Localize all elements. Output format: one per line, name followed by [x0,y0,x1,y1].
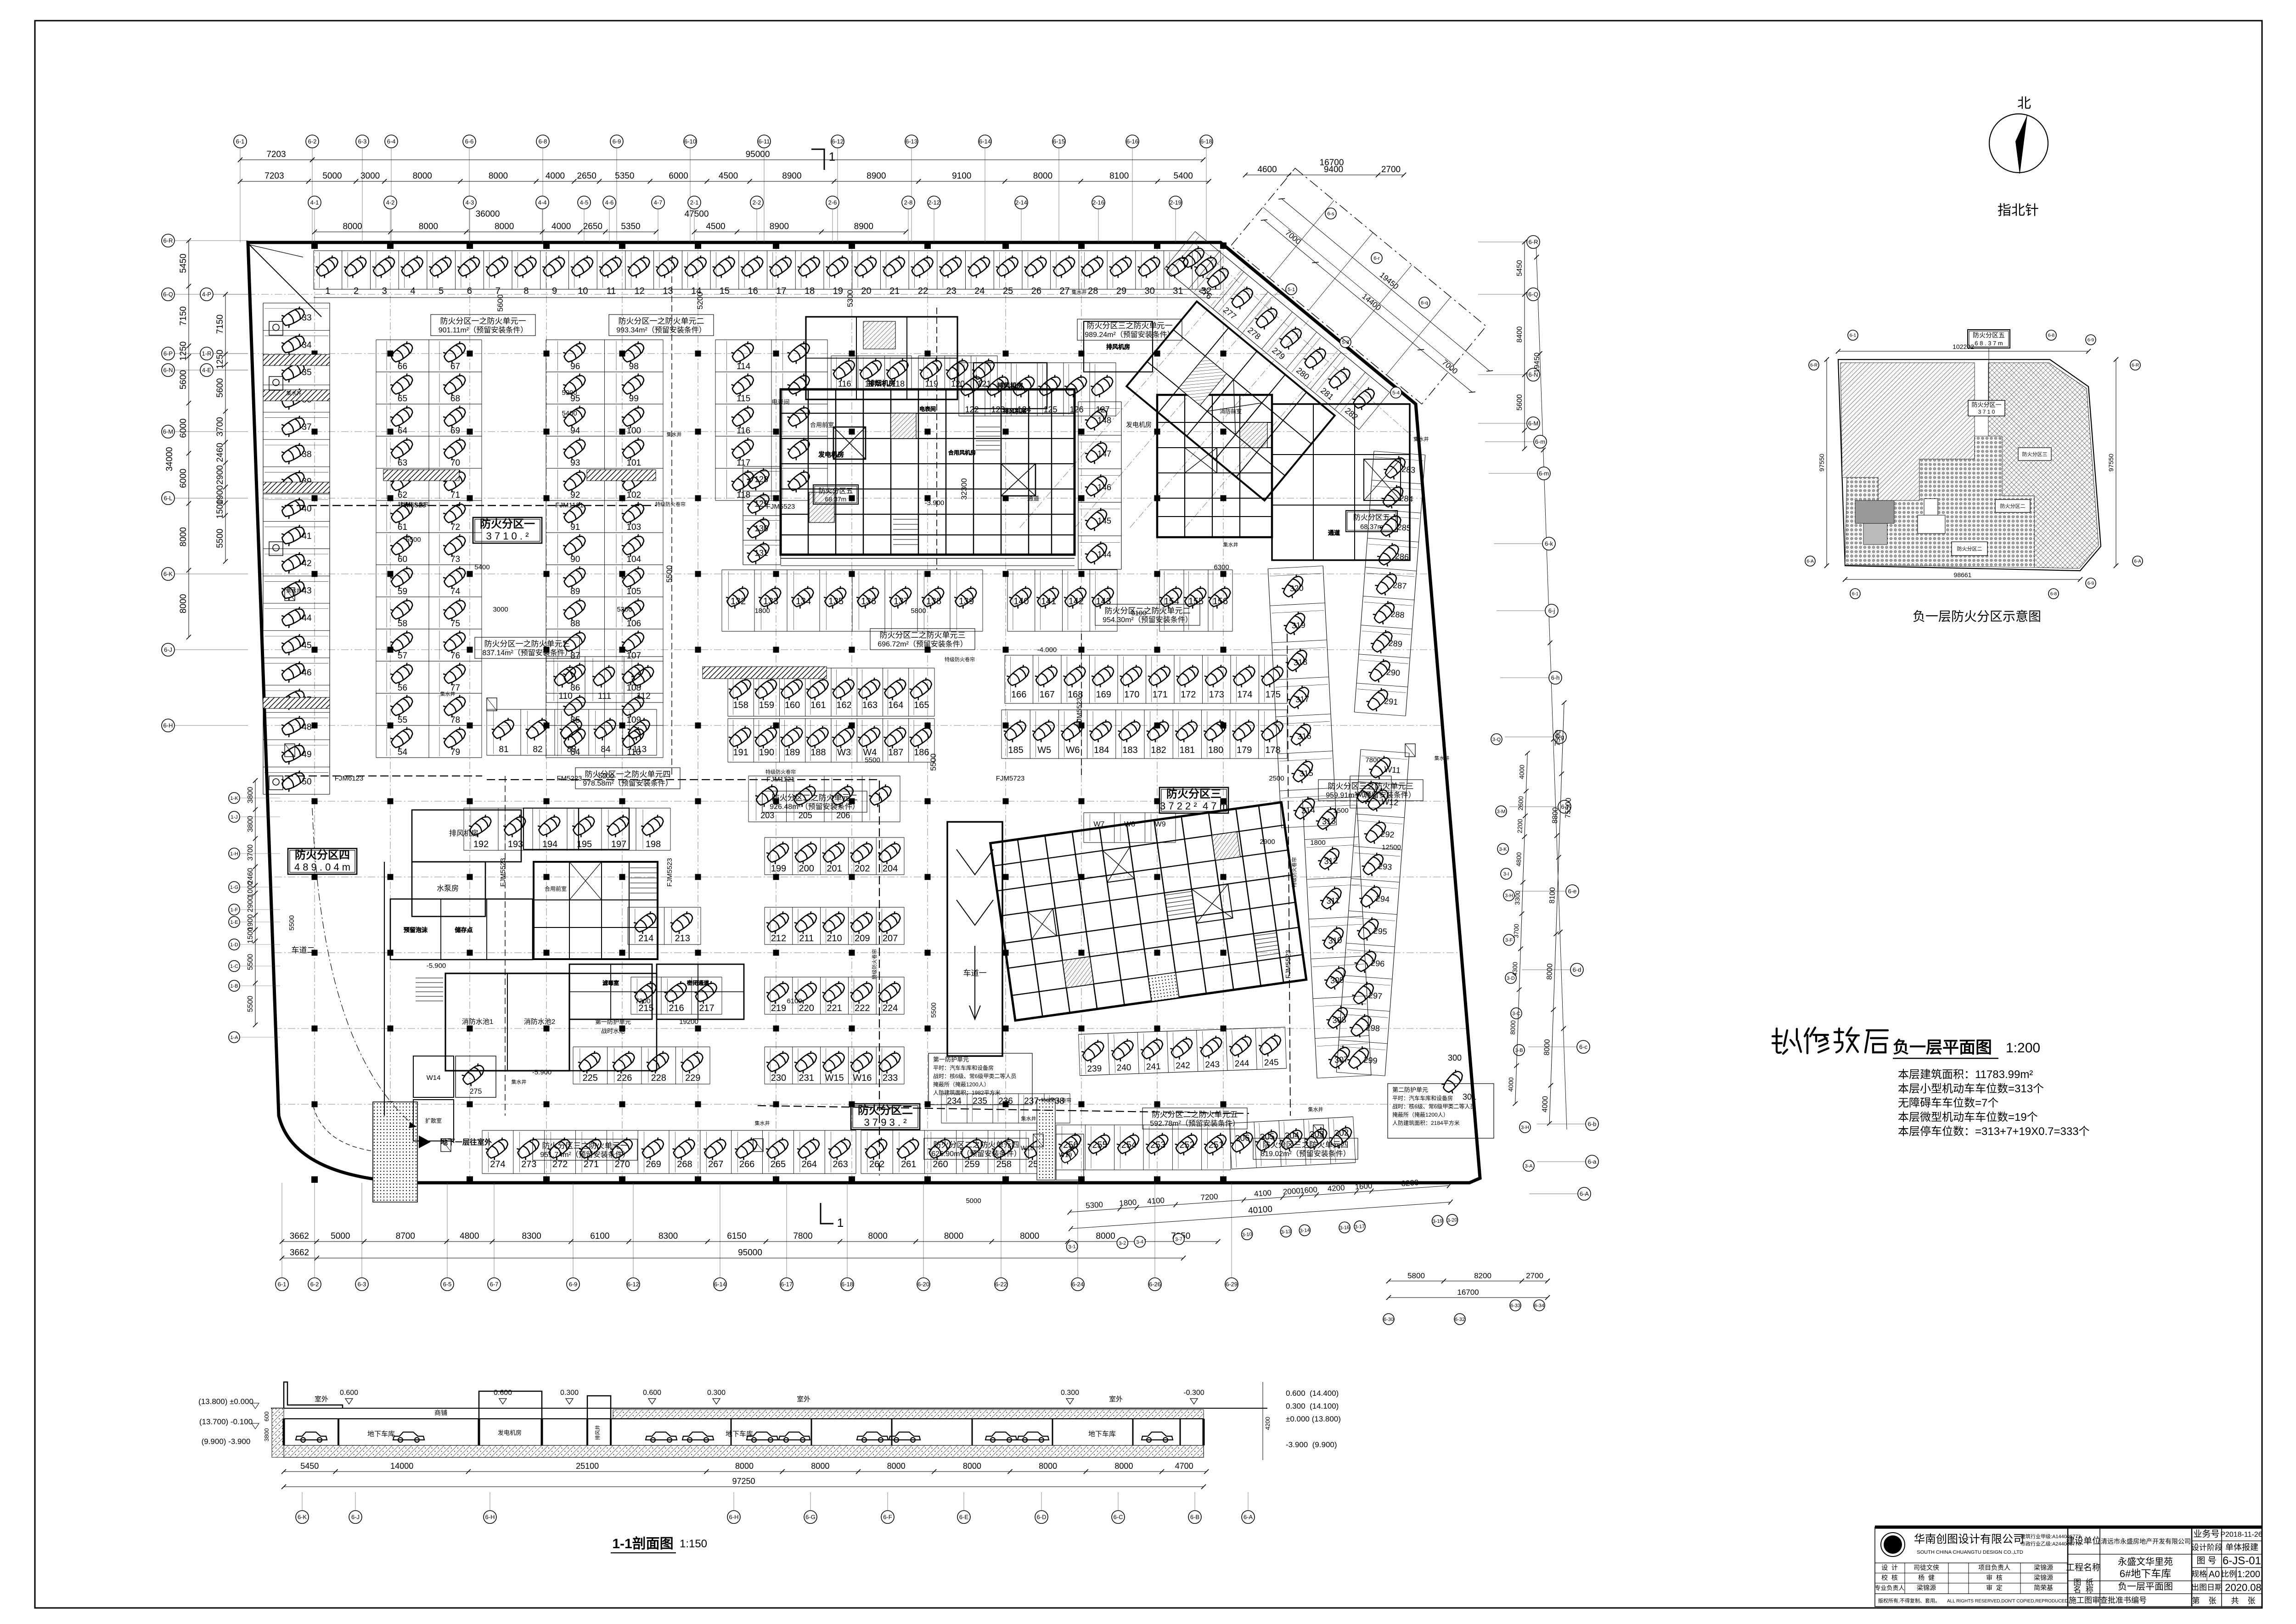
svg-text:47500: 47500 [685,209,709,219]
svg-text:59: 59 [398,587,407,596]
svg-text:901.11m²（预留安装条件）: 901.11m²（预留安装条件） [439,326,528,334]
svg-text:221: 221 [827,1003,842,1013]
svg-text:71: 71 [450,490,460,500]
svg-text:集水井: 集水井 [1308,1106,1323,1113]
svg-text:13: 13 [663,286,673,296]
svg-text:230: 230 [771,1073,786,1083]
svg-text:8700: 8700 [396,1231,415,1241]
svg-text:5400: 5400 [474,563,490,571]
svg-text:扩散室: 扩散室 [425,1117,442,1124]
svg-text:W9: W9 [1155,820,1166,828]
svg-text:6-20: 6-20 [917,1281,929,1288]
svg-text:防火分区二之防火单元二: 防火分区二之防火单元二 [1105,607,1191,615]
svg-text:174: 174 [1237,690,1252,700]
svg-text:梁锦源: 梁锦源 [1917,1584,1936,1591]
svg-text:189: 189 [785,747,800,758]
svg-text:2: 2 [354,286,359,296]
svg-text:8000: 8000 [413,171,432,181]
svg-text:275: 275 [470,1088,482,1096]
svg-text:21: 21 [889,286,900,296]
svg-text:0.300: 0.300 [560,1389,579,1397]
svg-text:6-18: 6-18 [841,1281,853,1288]
svg-text:226: 226 [617,1073,632,1083]
svg-text:永盛文华里苑: 永盛文华里苑 [2118,1557,2173,1567]
svg-text:96: 96 [570,362,580,371]
svg-text:防火分区二之防火单元五: 防火分区二之防火单元五 [1152,1110,1238,1119]
svg-text:8000: 8000 [1509,1020,1517,1035]
svg-text:289: 289 [1388,639,1402,649]
svg-text:4000: 4000 [546,171,565,181]
svg-text:6-K: 6-K [163,571,173,578]
svg-text:231: 231 [799,1073,814,1083]
svg-text:9100: 9100 [952,171,971,181]
svg-text:掩蔽所（掩蔽1200人）: 掩蔽所（掩蔽1200人） [933,1081,990,1088]
svg-text:-3.900: -3.900 [925,499,945,507]
svg-text:(9.900) -3.900: (9.900) -3.900 [202,1437,251,1446]
svg-text:W14: W14 [427,1074,441,1082]
svg-text:0.600: 0.600 [494,1389,512,1397]
svg-text:142: 142 [1069,596,1084,607]
svg-text:6-2: 6-2 [308,138,317,145]
svg-text:防火分区三之防火单元三: 防火分区三之防火单元三 [1328,782,1414,791]
svg-text:1: 1 [325,286,330,296]
svg-text:7800: 7800 [793,1231,812,1241]
svg-text:3000: 3000 [493,606,508,613]
svg-text:清远市永盛房地产开发有限公司: 清远市永盛房地产开发有限公司 [2101,1538,2191,1545]
svg-text:战时水池: 战时水池 [601,1028,625,1034]
svg-text:7203: 7203 [266,150,286,159]
svg-text:145: 145 [1097,517,1111,526]
svg-text:6-7: 6-7 [490,1281,499,1288]
svg-text:240: 240 [1116,1063,1131,1073]
svg-text:防火分区三: 防火分区三 [2022,451,2048,457]
svg-text:6-A: 6-A [2134,559,2141,564]
svg-text:136: 136 [861,596,876,607]
svg-text:4100: 4100 [1254,1188,1272,1198]
svg-text:148: 148 [1097,416,1111,425]
svg-text:83: 83 [567,745,576,754]
svg-text:6-JS-01: 6-JS-01 [2223,1555,2261,1567]
svg-text:6000: 6000 [669,171,688,181]
svg-text:216: 216 [669,1003,684,1013]
svg-text:4000: 4000 [1518,764,1525,779]
svg-text:-0.300: -0.300 [1183,1389,1204,1397]
svg-text:北: 北 [2017,96,2031,111]
svg-text:6-h: 6-h [1551,674,1560,681]
svg-text:1-C: 1-C [230,964,238,969]
svg-text:102: 102 [626,490,641,500]
svg-text:本层停车位数：=313+7+19X0.7=333个: 本层停车位数：=313+7+19X0.7=333个 [1898,1125,2090,1138]
svg-text:8: 8 [523,286,529,296]
svg-text:名 称: 名 称 [2073,1585,2093,1594]
svg-text:0.600: 0.600 [643,1389,661,1397]
svg-text:梁锦源: 梁锦源 [2034,1574,2053,1581]
svg-text:978.58m²（预留安装条件）: 978.58m²（预留安装条件） [583,779,673,787]
svg-text:171: 171 [1153,690,1168,700]
svg-text:36000: 36000 [476,209,500,219]
svg-text:排烟机房: 排烟机房 [868,380,895,388]
svg-text:3: 3 [382,286,387,296]
svg-text:251: 251 [1209,1140,1224,1150]
svg-text:排风井: 排风井 [594,1425,601,1440]
svg-text:5450: 5450 [179,253,188,273]
svg-text:规格: 规格 [2191,1570,2207,1579]
svg-text:6-18: 6-18 [1200,138,1212,145]
svg-text:防火分区五: 防火分区五 [818,487,853,495]
svg-text:A0: A0 [2209,1569,2220,1579]
svg-text:254: 254 [1121,1140,1137,1150]
svg-text:4000: 4000 [1541,1096,1549,1113]
svg-text:92: 92 [570,490,580,500]
svg-text:3700: 3700 [247,844,254,861]
svg-text:项目负责人: 项目负责人 [1978,1564,2010,1571]
svg-text:268: 268 [677,1159,692,1169]
svg-text:6000: 6000 [179,469,188,488]
svg-text:28: 28 [1088,286,1098,296]
svg-text:134: 134 [796,596,811,607]
svg-text:97550: 97550 [1818,454,1825,472]
svg-text:1500: 1500 [247,927,254,944]
svg-text:3-20: 3-20 [1447,1217,1458,1224]
svg-text:292: 292 [1380,829,1395,839]
svg-text:3800: 3800 [263,1428,270,1442]
svg-text:5600: 5600 [215,378,225,398]
svg-text:819.02m²（预留安装条件）: 819.02m²（预留安装条件） [1261,1150,1351,1158]
svg-text:84: 84 [601,745,611,754]
svg-text:合用风机房: 合用风机房 [948,449,976,456]
svg-text:W18: W18 [1021,1144,1034,1152]
svg-text:防火分区二之防火单元三: 防火分区二之防火单元三 [880,631,966,640]
svg-text:169: 169 [1096,690,1111,700]
svg-text:244: 244 [1234,1059,1249,1069]
svg-text:207: 207 [883,933,898,944]
svg-text:平时：汽车车库和设备房: 平时：汽车车库和设备房 [933,1064,994,1071]
svg-text:3-H: 3-H [1521,1125,1529,1130]
svg-text:6-14: 6-14 [714,1281,726,1288]
svg-text:排风机房: 排风机房 [449,829,478,837]
svg-text:109: 109 [626,715,641,725]
svg-text:防火分区二之防火单元二: 防火分区二之防火单元二 [772,793,858,802]
svg-text:6150: 6150 [727,1231,746,1241]
svg-text:2-2: 2-2 [753,199,761,206]
svg-text:6-D: 6-D [1037,1514,1047,1521]
svg-text:6-k: 6-k [1545,540,1553,547]
svg-text:100: 100 [626,426,641,436]
svg-text:6-30: 6-30 [1384,1317,1394,1322]
svg-text:6-1: 6-1 [278,1281,287,1288]
svg-text:6-B: 6-B [1190,1514,1199,1521]
svg-text:592.78m²（预留安装条件）: 592.78m²（预留安装条件） [1150,1119,1240,1128]
svg-text:272: 272 [552,1159,568,1169]
svg-text:242: 242 [1176,1061,1190,1071]
svg-text:1500: 1500 [1333,807,1348,815]
svg-text:集水井: 集水井 [1414,436,1429,442]
svg-text:315: 315 [1299,768,1313,778]
svg-text:65: 65 [398,394,407,404]
svg-text:258: 258 [996,1159,1012,1169]
svg-text:2900: 2900 [215,465,225,484]
svg-text:防火分区三之防火单元一: 防火分区三之防火单元一 [1087,321,1173,330]
svg-text:FJM1121: FJM1121 [555,501,583,509]
svg-text:排风机房: 排风机房 [1106,343,1130,350]
svg-text:6-3: 6-3 [358,1281,366,1288]
svg-text:8000: 8000 [495,222,514,231]
svg-text:7150: 7150 [179,306,188,326]
svg-text:8000: 8000 [179,594,188,613]
svg-text:88: 88 [570,619,580,629]
svg-text:FJM5523: FJM5523 [766,503,795,511]
svg-text:58: 58 [398,619,407,629]
svg-text:94: 94 [570,426,580,436]
svg-text:3 7 9 3 . ²: 3 7 9 3 . ² [864,1117,907,1128]
svg-text:(13.800) ±0.000: (13.800) ±0.000 [198,1397,253,1406]
svg-text:104: 104 [626,555,641,564]
svg-text:306: 306 [1235,1133,1250,1144]
svg-text:3300: 3300 [1514,890,1521,905]
svg-text:8000: 8000 [963,1461,981,1471]
svg-text:114: 114 [737,362,751,371]
svg-text:135: 135 [828,596,844,607]
svg-text:271: 271 [584,1159,599,1169]
svg-text:6-L: 6-L [164,495,173,502]
svg-text:6-r: 6-r [1373,256,1380,261]
svg-text:FJM5523: FJM5523 [499,858,507,887]
svg-text:105: 105 [626,587,641,596]
svg-text:8000: 8000 [1546,963,1554,980]
svg-text:6-26: 6-26 [1149,1281,1161,1288]
svg-text:2-8: 2-8 [904,199,913,206]
svg-text:防火分区一: 防火分区一 [480,517,535,530]
svg-text:FJM5523: FJM5523 [666,858,674,887]
svg-text:5-1: 5-1 [1288,287,1295,292]
svg-text:261: 261 [901,1159,916,1169]
svg-text:8000: 8000 [1039,1461,1057,1471]
svg-text:42: 42 [302,559,311,568]
svg-text:228: 228 [651,1073,666,1083]
svg-text:业务号: 业务号 [2193,1529,2219,1539]
svg-text:本层微型机动车车位数=19个: 本层微型机动车车位数=19个 [1898,1111,2038,1124]
svg-text:5450: 5450 [300,1461,319,1471]
svg-text:274: 274 [490,1159,505,1169]
svg-text:战时：核6级、常6级甲类二等人员: 战时：核6级、常6级甲类二等人员 [933,1073,1016,1079]
svg-text:8900: 8900 [867,171,886,181]
svg-text:8000: 8000 [1543,1039,1551,1056]
svg-text:6-J: 6-J [164,646,172,653]
svg-text:158: 158 [733,700,748,710]
svg-text:5500: 5500 [405,536,421,544]
svg-text:2700: 2700 [1526,1271,1543,1280]
svg-text:163: 163 [862,700,878,710]
svg-text:7200: 7200 [635,997,650,1005]
svg-text:3-M: 3-M [1497,809,1506,815]
svg-text:1: 1 [837,1216,844,1230]
svg-text:45: 45 [302,641,311,650]
svg-text:311: 311 [1326,896,1340,905]
svg-text:8100: 8100 [1109,171,1129,181]
svg-text:300: 300 [1448,1053,1462,1062]
svg-text:29: 29 [1116,286,1126,296]
svg-text:6-R: 6-R [2132,363,2139,368]
svg-text:68.37m: 68.37m [1360,523,1383,531]
svg-text:156: 156 [1213,596,1228,607]
svg-text:6-14: 6-14 [979,138,991,145]
svg-text:防火分区三: 防火分区三 [1166,787,1221,800]
svg-text:6100: 6100 [1131,609,1146,617]
svg-text:133: 133 [763,596,778,607]
svg-text:简荣基: 简荣基 [2034,1584,2053,1591]
svg-text:发电机房: 发电机房 [498,1429,522,1436]
svg-text:97250: 97250 [732,1477,755,1486]
svg-text:6-17: 6-17 [781,1281,793,1288]
svg-text:8300: 8300 [522,1231,541,1241]
svg-text:73: 73 [450,555,460,564]
svg-text:8000: 8000 [419,222,438,231]
svg-text:5300: 5300 [846,290,855,307]
svg-text:161: 161 [810,700,826,710]
svg-text:209: 209 [855,933,870,944]
svg-text:204: 204 [883,864,898,874]
svg-text:5400: 5400 [1174,171,1193,181]
svg-text:3662: 3662 [290,1248,309,1258]
svg-text:290: 290 [1386,668,1400,678]
svg-text:16700: 16700 [1320,158,1344,168]
svg-text:5000: 5000 [331,1231,350,1241]
svg-text:-3.900 (9.900): -3.900 (9.900) [1286,1440,1337,1449]
svg-text:储存点: 储存点 [455,927,473,933]
svg-text:6-3: 6-3 [358,138,367,145]
svg-text:6-6: 6-6 [465,138,474,145]
svg-text:68.37m: 68.37m [825,495,847,503]
svg-text:6-E: 6-E [959,1514,969,1521]
svg-text:17: 17 [776,286,786,296]
svg-text:8000: 8000 [1033,171,1052,181]
svg-text:集水井: 集水井 [1072,289,1087,295]
svg-text:4000: 4000 [1507,1077,1515,1092]
svg-text:5600: 5600 [179,370,188,389]
svg-text:6-c: 6-c [1579,1044,1588,1051]
svg-text:175: 175 [1266,690,1281,700]
svg-text:219: 219 [771,1003,786,1013]
svg-text:23: 23 [946,286,957,296]
svg-text:1-E: 1-E [230,920,238,925]
svg-text:5500: 5500 [288,915,296,930]
svg-text:22: 22 [918,286,928,296]
svg-text:集水井: 集水井 [755,1120,770,1126]
svg-text:2-1: 2-1 [690,199,699,206]
svg-text:4-6: 4-6 [605,199,614,206]
svg-text:4800: 4800 [460,1231,479,1241]
svg-text:16: 16 [748,286,758,296]
svg-text:2020.08: 2020.08 [2225,1582,2262,1593]
svg-text:18: 18 [805,286,815,296]
svg-text:62: 62 [398,490,407,500]
svg-text:室外: 室外 [797,1395,810,1403]
svg-text:24: 24 [974,286,985,296]
svg-text:FM5223: FM5223 [557,775,582,782]
svg-text:8300: 8300 [658,1231,678,1241]
svg-text:4700: 4700 [1175,1461,1193,1471]
svg-text:5900: 5900 [562,389,577,397]
svg-text:110: 110 [558,691,572,701]
svg-text:12500: 12500 [1382,843,1401,851]
svg-text:19450: 19450 [1533,353,1541,373]
svg-text:防火分区一之防火单元三: 防火分区一之防火单元三 [484,640,570,648]
svg-text:共 张: 共 张 [2231,1596,2256,1605]
svg-text:6-m: 6-m [1535,438,1545,445]
svg-text:无障碍车车位数=7个: 无障碍车车位数=7个 [1898,1097,1998,1109]
svg-text:防火分区一之防火单元四: 防火分区一之防火单元四 [585,770,671,779]
svg-text:5500: 5500 [215,528,225,548]
svg-text:6300: 6300 [1214,563,1229,571]
svg-text:3000: 3000 [360,171,380,181]
svg-text:2-14: 2-14 [1015,199,1027,206]
svg-text:3 7 1 0 . ²: 3 7 1 0 . ² [486,530,529,542]
svg-text:3-C: 3-C [1512,1011,1520,1017]
svg-text:5200: 5200 [598,772,613,780]
svg-text:57: 57 [398,651,407,661]
svg-text:6-K: 6-K [298,1514,307,1521]
svg-text:电表间: 电表间 [919,406,936,412]
svg-text:14000: 14000 [390,1461,413,1471]
svg-text:98661: 98661 [1954,571,1972,579]
svg-text:5500: 5500 [929,753,938,771]
svg-text:98: 98 [629,362,639,371]
svg-text:288: 288 [1390,610,1405,620]
svg-text:107: 107 [626,651,641,661]
svg-text:287: 287 [1392,580,1407,590]
svg-text:6-16: 6-16 [1126,138,1138,145]
svg-text:253: 253 [1150,1140,1165,1150]
svg-text:3-B: 3-B [1515,1048,1523,1053]
svg-text:1500: 1500 [215,500,225,519]
svg-text:通道: 通道 [1027,495,1039,502]
svg-text:防火分区三之防火单元四: 防火分区三之防火单元四 [1263,1141,1349,1149]
svg-text:144: 144 [1097,550,1111,559]
svg-text:5000: 5000 [966,1197,981,1205]
svg-text:2-12: 2-12 [928,199,940,206]
svg-text:3-4: 3-4 [1136,1239,1144,1245]
svg-text:室外: 室外 [315,1395,328,1403]
svg-text:地下一层往室外: 地下一层往室外 [440,1138,492,1146]
svg-text:4-4: 4-4 [538,199,547,206]
svg-text:6-24: 6-24 [1072,1281,1084,1288]
svg-text:发电机房: 发电机房 [1126,421,1152,428]
svg-text:262: 262 [869,1159,884,1169]
svg-text:8000: 8000 [944,1231,963,1241]
svg-text:-4.000: -4.000 [1037,646,1057,654]
svg-text:1:200: 1:200 [2006,1040,2040,1056]
svg-text:P2018-11-26: P2018-11-26 [2220,1531,2262,1539]
svg-text:华南创图设计有限公司: 华南创图设计有限公司 [1914,1533,2024,1545]
svg-text:696.72m²（预留安装条件）: 696.72m²（预留安装条件） [878,640,968,648]
svg-text:8800: 8800 [1551,807,1559,824]
svg-text:2-6: 2-6 [828,199,837,206]
svg-text:2650: 2650 [577,171,597,181]
svg-text:320: 320 [1289,583,1304,593]
svg-text:154: 154 [1164,596,1179,607]
svg-text:3-Q: 3-Q [1492,737,1501,742]
svg-text:255: 255 [1092,1140,1107,1150]
svg-text:FJM5723: FJM5723 [996,775,1025,782]
svg-text:5500: 5500 [665,565,674,583]
svg-text:3-1: 3-1 [1068,1244,1076,1250]
svg-text:3-10: 3-10 [1242,1231,1252,1238]
svg-text:司徒文侠: 司徒文侠 [1913,1564,1939,1571]
svg-text:6-A: 6-A [1806,559,1814,564]
svg-text:4-P: 4-P [202,291,211,298]
svg-text:191: 191 [733,747,748,758]
svg-text:FJM1121: FJM1121 [766,775,794,783]
